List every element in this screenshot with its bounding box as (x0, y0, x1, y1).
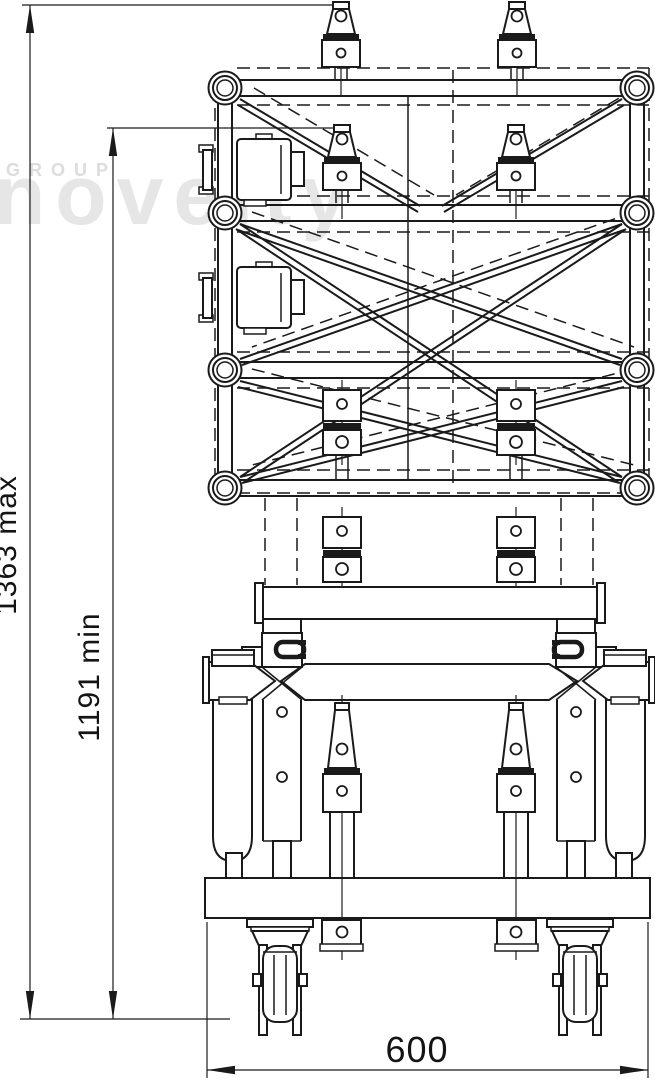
pin-bracket-left (320, 920, 363, 951)
chord-end-circle (621, 197, 654, 230)
dim-width: 600 (207, 1029, 648, 1074)
chord-end-circle (209, 472, 242, 505)
technical-drawing: GROUP novelty (0, 0, 655, 1081)
chord-end-circle (621, 354, 654, 387)
drawing-canvas: GROUP novelty (0, 0, 655, 1081)
bay-coupler-left (323, 380, 361, 480)
dim-label-height-min: 1191 min (73, 612, 106, 741)
dim-label-width: 600 (385, 1029, 448, 1070)
dim-label-height-max: 1363 max (0, 475, 23, 615)
chord-end-circle (621, 72, 654, 105)
caster-left (247, 919, 313, 1035)
top-spigot-right (498, 2, 536, 96)
chord-end-circle (209, 197, 242, 230)
center-pin-left (323, 695, 361, 878)
base-cross-beam (281, 664, 577, 700)
top-spigot-left (322, 2, 360, 96)
chord-end-circle (209, 354, 242, 387)
bay-coupler-right (497, 380, 535, 480)
outrigger-left (203, 650, 275, 878)
caster-right (547, 919, 613, 1035)
truss-tower (199, 2, 654, 505)
dim-height-min: 1191 min (73, 128, 117, 1019)
pin-bracket-right (495, 920, 538, 951)
sleeve-coupler-left (323, 507, 361, 592)
chord-end-circle (621, 472, 654, 505)
sleeve-coupler-right (497, 507, 535, 592)
center-pin-right (497, 695, 535, 878)
base-assembly (203, 619, 655, 1035)
sleeve-cross-bar (255, 583, 605, 623)
lifting-sleeve (255, 498, 605, 623)
outrigger-right (583, 650, 655, 878)
chord-end-circle (209, 72, 242, 105)
